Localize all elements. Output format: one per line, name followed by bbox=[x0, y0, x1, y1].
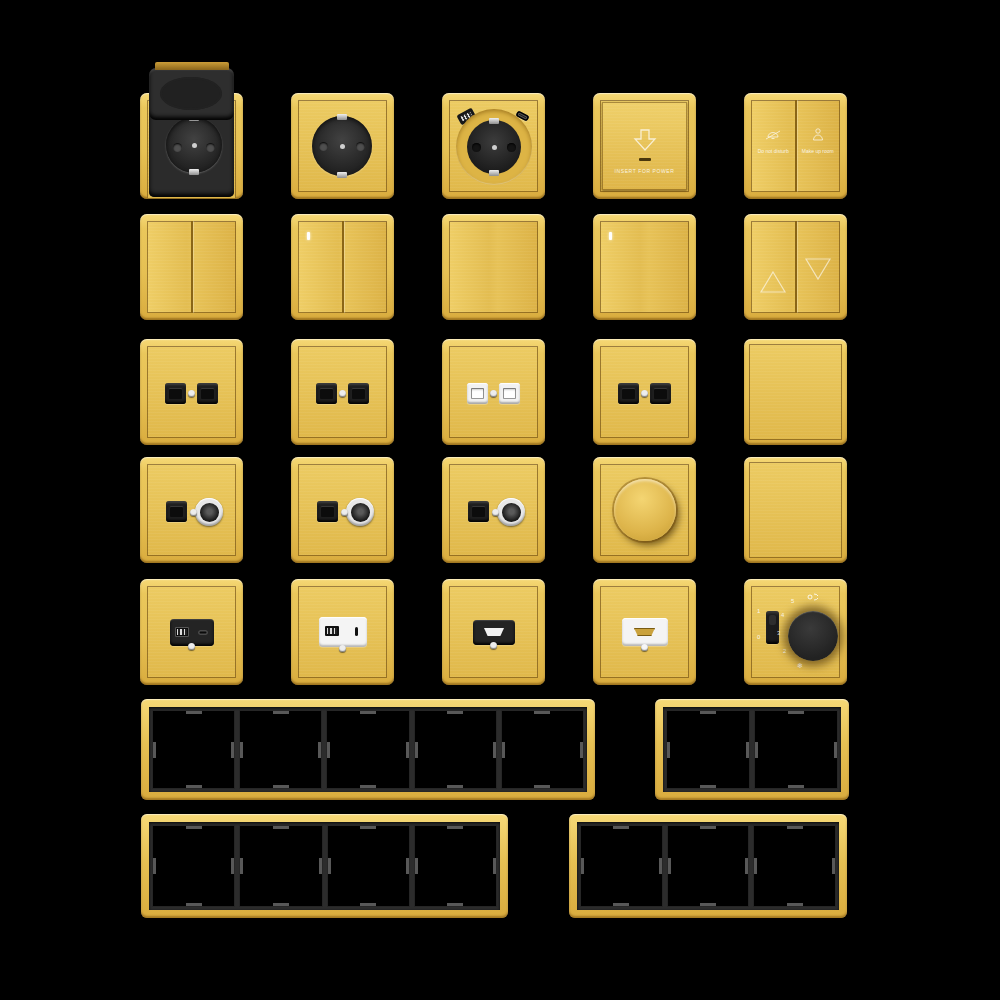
product-frame-2-gang[interactable] bbox=[655, 699, 849, 800]
screw-dot bbox=[641, 390, 648, 397]
frame-window bbox=[753, 825, 836, 907]
data-port[interactable] bbox=[499, 383, 520, 404]
thermostat-knob[interactable] bbox=[788, 611, 838, 661]
product-collage: INSERT FOR POWER Do not disturb Make up … bbox=[0, 0, 1000, 1000]
blank-cover bbox=[749, 344, 842, 440]
usb-c-port[interactable] bbox=[198, 630, 208, 635]
usb-a-port[interactable] bbox=[175, 627, 189, 637]
frame-window bbox=[414, 710, 497, 789]
socket-pin bbox=[340, 144, 345, 149]
product-hdmi-socket-white[interactable] bbox=[593, 579, 696, 685]
dimmer-knob[interactable] bbox=[614, 479, 676, 541]
frame-window bbox=[152, 825, 235, 907]
hdmi-port[interactable] bbox=[484, 628, 504, 636]
scale-mark-3: 3 bbox=[777, 630, 780, 636]
faceplate-inner bbox=[600, 346, 689, 438]
rocker-divider bbox=[795, 100, 797, 192]
make-up-room-label: Make up room bbox=[799, 148, 837, 154]
data-port[interactable] bbox=[467, 383, 488, 404]
schuko-outlet bbox=[467, 120, 521, 174]
frame-cavity bbox=[663, 707, 841, 792]
frame-window bbox=[754, 710, 838, 789]
socket-hole bbox=[472, 143, 481, 152]
rocker-divider bbox=[342, 221, 344, 313]
faceplate-inner bbox=[449, 346, 538, 438]
faceplate-inner bbox=[298, 100, 387, 192]
hdmi-port[interactable] bbox=[634, 628, 655, 636]
data-port[interactable] bbox=[650, 383, 671, 404]
product-curtain-blind-switch[interactable] bbox=[744, 214, 847, 320]
indicator-led bbox=[307, 232, 310, 240]
switch-rockers bbox=[751, 221, 840, 313]
faceplate-inner bbox=[298, 586, 387, 678]
dnd-label: Do not disturb bbox=[754, 148, 792, 154]
card-slot bbox=[639, 158, 651, 161]
screw-dot bbox=[341, 509, 348, 516]
screw-dot bbox=[339, 390, 346, 397]
flip-cover-lid[interactable] bbox=[149, 68, 234, 120]
socket-hole bbox=[319, 142, 328, 151]
switch-rockers[interactable] bbox=[298, 221, 387, 313]
coax-connector[interactable] bbox=[497, 498, 525, 526]
frame-window bbox=[152, 710, 235, 789]
frame-window bbox=[501, 710, 584, 789]
socket-pin bbox=[492, 145, 497, 150]
usb-module bbox=[319, 617, 367, 647]
product-usb-a-c-charger-white[interactable] bbox=[291, 579, 394, 685]
faceplate-inner: INSERT FOR POWER bbox=[600, 100, 689, 192]
rocker-divider bbox=[191, 221, 193, 313]
fan-icon bbox=[806, 591, 820, 603]
data-port[interactable] bbox=[468, 501, 489, 522]
usb-c-port[interactable] bbox=[355, 627, 358, 636]
earth-clip bbox=[489, 170, 499, 176]
hdmi-module bbox=[622, 618, 668, 646]
triangle-down-icon bbox=[804, 256, 832, 282]
socket-hole bbox=[356, 142, 365, 151]
screw-dot bbox=[641, 644, 648, 651]
data-port[interactable] bbox=[317, 501, 338, 522]
product-data-socket-2-port-black[interactable] bbox=[291, 339, 394, 445]
data-port[interactable] bbox=[166, 501, 187, 522]
lid-oval bbox=[160, 77, 222, 110]
screw-dot bbox=[339, 645, 346, 652]
usb-module bbox=[170, 619, 214, 646]
bell-slash-icon bbox=[764, 128, 782, 142]
product-frame-5-gang[interactable] bbox=[141, 699, 595, 800]
faceplate-inner bbox=[600, 586, 689, 678]
socket-hole bbox=[507, 143, 516, 152]
frame-window bbox=[580, 825, 663, 907]
screw-dot bbox=[190, 509, 197, 516]
socket-pin bbox=[192, 143, 197, 148]
make-up-room-rocker[interactable]: Make up room bbox=[796, 100, 841, 192]
arrow-down-icon bbox=[631, 128, 659, 154]
coax-connector[interactable] bbox=[195, 498, 223, 526]
product-data-socket-2-port-black[interactable] bbox=[140, 339, 243, 445]
screw-dot bbox=[490, 390, 497, 397]
product-blank-plate[interactable] bbox=[744, 457, 847, 563]
product-blank-plate[interactable] bbox=[744, 339, 847, 445]
product-frame-4-gang[interactable] bbox=[141, 814, 508, 918]
switch-rocker[interactable] bbox=[449, 221, 538, 313]
faceplate-inner: 1 0 5 4 3 2 ❄ bbox=[751, 586, 840, 678]
usb-a-port[interactable] bbox=[325, 626, 339, 636]
product-rocker-switch-1-gang-indicator[interactable] bbox=[593, 214, 696, 320]
card-panel[interactable]: INSERT FOR POWER bbox=[602, 102, 687, 190]
faceplate-inner bbox=[298, 464, 387, 556]
faceplate-inner bbox=[600, 464, 689, 556]
product-hdmi-socket-black[interactable] bbox=[442, 579, 545, 685]
key-card-label: INSERT FOR POWER bbox=[602, 168, 687, 174]
product-rocker-switch-2-gang[interactable] bbox=[140, 214, 243, 320]
frame-window bbox=[414, 825, 497, 907]
earth-clip bbox=[489, 118, 499, 124]
frame-window bbox=[327, 825, 410, 907]
frame-window bbox=[239, 825, 322, 907]
data-port[interactable] bbox=[197, 383, 218, 404]
indicator-led bbox=[609, 232, 612, 240]
curtain-up-rocker[interactable] bbox=[751, 221, 796, 313]
product-service-switch[interactable]: Do not disturb Make up room bbox=[744, 93, 847, 199]
product-rotary-dimmer[interactable] bbox=[593, 457, 696, 563]
frame-window bbox=[326, 710, 409, 789]
product-key-card-power-switch[interactable]: INSERT FOR POWER bbox=[593, 93, 696, 199]
data-port[interactable] bbox=[618, 383, 639, 404]
frame-cavity bbox=[577, 822, 839, 910]
maid-icon bbox=[811, 128, 825, 142]
switch-rockers: Do not disturb Make up room bbox=[751, 100, 840, 192]
coax-connector[interactable] bbox=[346, 498, 374, 526]
schuko-outlet bbox=[166, 117, 222, 173]
faceplate-inner bbox=[449, 100, 538, 192]
faceplate-inner bbox=[147, 586, 236, 678]
slider-off-mark: 0 bbox=[757, 634, 760, 640]
product-rocker-switch-1-gang[interactable] bbox=[442, 214, 545, 320]
snowflake-icon: ❄ bbox=[797, 662, 803, 670]
screw-dot bbox=[490, 642, 497, 649]
on-off-slider[interactable] bbox=[766, 611, 779, 644]
frame-cavity bbox=[149, 822, 500, 910]
faceplate-inner bbox=[449, 586, 538, 678]
frame-window bbox=[666, 710, 750, 789]
data-port[interactable] bbox=[316, 383, 337, 404]
earth-clip bbox=[337, 114, 347, 120]
frame-cavity bbox=[149, 707, 587, 792]
product-usb-a-c-charger-black[interactable] bbox=[140, 579, 243, 685]
faceplate-inner bbox=[147, 464, 236, 556]
scale-mark-2: 2 bbox=[783, 648, 786, 654]
screw-dot bbox=[188, 390, 195, 397]
product-frame-3-gang[interactable] bbox=[569, 814, 847, 918]
blank-cover bbox=[749, 462, 842, 558]
socket-hole bbox=[206, 143, 215, 152]
dnd-rocker[interactable]: Do not disturb bbox=[751, 100, 796, 192]
product-schuko-socket[interactable] bbox=[291, 93, 394, 199]
product-data-tv-socket[interactable] bbox=[140, 457, 243, 563]
earth-clip bbox=[337, 172, 347, 178]
rocker-divider bbox=[795, 221, 797, 313]
schuko-outlet bbox=[312, 116, 372, 176]
product-data-socket-2-port-white[interactable] bbox=[442, 339, 545, 445]
product-data-tv-socket[interactable] bbox=[442, 457, 545, 563]
product-data-socket-2-port-black[interactable] bbox=[593, 339, 696, 445]
faceplate-inner bbox=[449, 464, 538, 556]
switch-rockers[interactable] bbox=[147, 221, 236, 313]
curtain-down-rocker[interactable] bbox=[796, 221, 841, 313]
lid-hinge bbox=[155, 62, 229, 70]
product-schuko-socket-usb-charger[interactable] bbox=[442, 93, 545, 199]
product-fan-speed-thermostat[interactable]: 1 0 5 4 3 2 ❄ bbox=[744, 579, 847, 685]
faceplate-inner bbox=[298, 346, 387, 438]
slider-on-mark: 1 bbox=[757, 608, 760, 614]
screw-dot bbox=[492, 509, 499, 516]
data-port[interactable] bbox=[165, 383, 186, 404]
product-data-tv-socket[interactable] bbox=[291, 457, 394, 563]
frame-window bbox=[239, 710, 322, 789]
scale-mark-4: 4 bbox=[781, 612, 784, 618]
switch-rocker[interactable] bbox=[600, 221, 689, 313]
data-port[interactable] bbox=[348, 383, 369, 404]
product-rocker-switch-2-gang-indicator[interactable] bbox=[291, 214, 394, 320]
socket-recess bbox=[456, 109, 532, 185]
scale-mark-5: 5 bbox=[791, 598, 794, 604]
screw-dot bbox=[188, 643, 195, 650]
faceplate-inner bbox=[147, 346, 236, 438]
triangle-up-icon bbox=[759, 269, 787, 295]
earth-clip bbox=[189, 169, 199, 175]
product-schuko-socket-flip-cover[interactable] bbox=[140, 62, 243, 199]
socket-hole bbox=[173, 143, 182, 152]
frame-window bbox=[667, 825, 750, 907]
